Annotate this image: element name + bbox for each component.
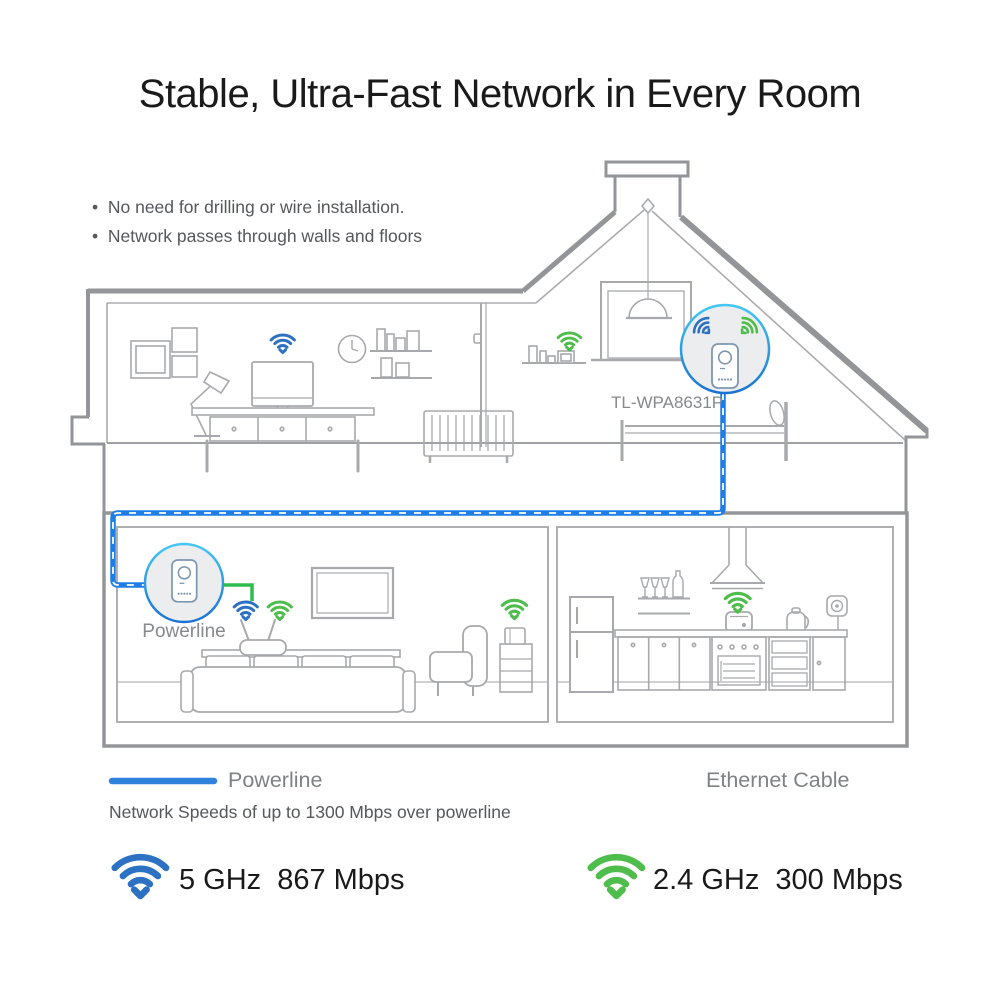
- wifi-icon-blue-5ghz: [115, 857, 166, 896]
- pendant-lamp: [626, 213, 672, 318]
- speed-24ghz-rate: 300 Mbps: [775, 864, 902, 897]
- wall-clock: [339, 336, 366, 363]
- router: [240, 620, 286, 655]
- kitchen: [570, 527, 847, 692]
- nas-device: [505, 628, 525, 644]
- bottle: [673, 571, 683, 597]
- legend-note: Network Speeds of up to 1300 Mbps over p…: [109, 802, 511, 823]
- sofa: [181, 656, 415, 712]
- counter-top: [615, 630, 847, 637]
- powerline-adapter-icon: [172, 560, 197, 602]
- refrigerator: [570, 597, 613, 692]
- ethernet-cable-line: [223, 585, 252, 601]
- door: [474, 303, 486, 447]
- wifi-icon-blue-monitor: [271, 335, 294, 353]
- chimney: [606, 162, 688, 217]
- feature-item: No need for drilling or wire installatio…: [92, 197, 422, 218]
- wifi-icon-green-toaster: [725, 593, 750, 612]
- wifi-icon-green-router: [268, 602, 291, 620]
- adapter-label: Powerline: [124, 621, 244, 643]
- wall-outlet: [827, 596, 847, 630]
- wifi-icon-green-24ghz: [591, 857, 642, 896]
- page-title: Stable, Ultra-Fast Network in Every Room: [0, 72, 1000, 117]
- page: Stable, Ultra-Fast Network in Every Room…: [0, 0, 1000, 1000]
- upper-living-room: [131, 303, 513, 471]
- glass-shelf: [638, 571, 690, 614]
- extender-device: [681, 305, 769, 393]
- wifi-icon-green-attic: [558, 333, 581, 350]
- wifi-icon-green-nas: [502, 600, 526, 618]
- attic-shelf: [522, 346, 586, 363]
- range-hood: [710, 527, 765, 589]
- picture-frames: [131, 328, 197, 378]
- side-cabinet: [500, 628, 532, 692]
- house-diagram: [0, 0, 1000, 1000]
- radiator: [424, 411, 513, 463]
- speed-5ghz-rate: 867 Mbps: [277, 864, 404, 897]
- wall-tv: [312, 568, 393, 618]
- speed-5ghz-band: 5 GHz: [179, 864, 261, 897]
- speed-24ghz-band: 2.4 GHz: [653, 864, 759, 897]
- adapter-device: [145, 544, 223, 622]
- extender-label: TL-WPA8631P: [611, 393, 723, 413]
- armchair: [430, 626, 487, 696]
- wall-shelves: [370, 329, 432, 378]
- feature-item: Network passes through walls and floors: [92, 226, 422, 247]
- monitor: [252, 362, 313, 414]
- speed-24ghz: 2.4 GHz 300 Mbps: [653, 864, 903, 897]
- wifi-icon-blue-router: [234, 602, 257, 620]
- powerline-extender-icon: [712, 344, 738, 388]
- speed-5ghz: 5 GHz 867 Mbps: [179, 864, 405, 897]
- legend-ethernet-label: Ethernet Cable: [706, 768, 849, 793]
- toaster: [726, 612, 752, 632]
- legend-powerline-label: Powerline: [228, 768, 322, 793]
- kettle: [787, 608, 808, 632]
- feature-list: No need for drilling or wire installatio…: [92, 197, 422, 255]
- sideboard: [192, 408, 374, 471]
